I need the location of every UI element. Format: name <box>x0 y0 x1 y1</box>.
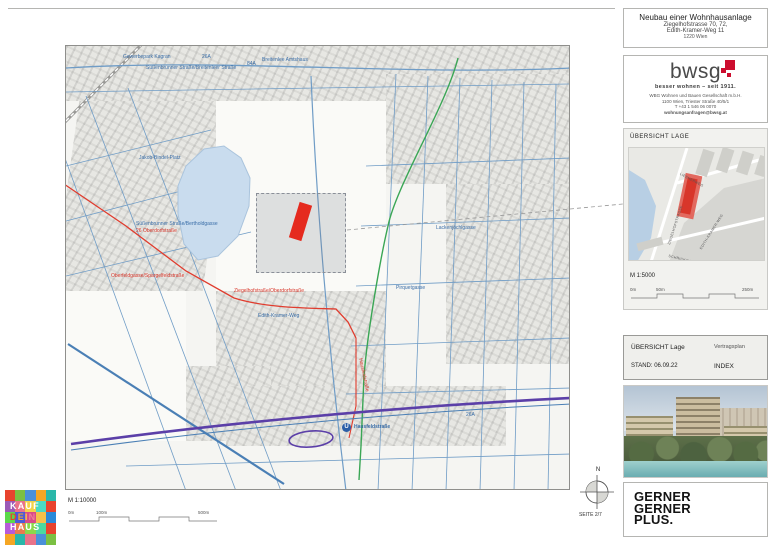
bwsg-logo: bwsg <box>670 62 721 82</box>
map-scale-bar: 0m 100m 500m <box>68 508 220 526</box>
metro-station-label: Hausfeldstraße <box>354 425 390 430</box>
plan-date-label: STAND: 06.09.22 <box>631 363 678 369</box>
map-street-label: Gewerbepark Kagran <box>123 55 171 60</box>
bwsg-square-icon <box>725 60 735 70</box>
metro-turnback-loop <box>288 429 333 449</box>
map-street-label: Jakob-Bindel-Platz <box>139 156 181 161</box>
plan-titleblock: ÜBERSICHT Lage Vertragsplan STAND: 06.09… <box>623 335 768 380</box>
metro-station-icon: U <box>342 423 351 432</box>
city-map: Gewerbepark Kagran Süßenbrunner Straße/B… <box>65 45 570 490</box>
svg-text:250m: 250m <box>742 287 754 292</box>
overview-section-title: ÜBERSICHT LAGE <box>630 134 689 140</box>
architect-logo-block: GERNER GERNER PLUS. <box>623 482 768 537</box>
bus-number-label: 84A <box>247 62 256 67</box>
bus-route-red-spur <box>349 338 356 438</box>
bus-number-label: 26A <box>466 413 475 418</box>
map-street-label: Süßenbrunner Straße/Bertholdgasse <box>136 222 218 227</box>
bwsg-wordmark: bwsg <box>670 60 721 83</box>
kdh-line-haus: HAUS <box>10 522 40 533</box>
map-scale-label: M 1:10000 <box>68 498 96 504</box>
map-stop-label: Oberfeldgasse/Spargelfeldstraße <box>111 274 184 279</box>
map-stop-label: Ziegelhofstraße/Oberdorfstraße <box>234 289 304 294</box>
page-number-label: SEITE 2/7 <box>579 512 602 518</box>
bwsg-logo-block: bwsg besser wohnen – seit 1911. WBG Wohn… <box>623 55 768 123</box>
plan-category-label: Vertragsplan <box>714 344 745 350</box>
svg-text:100m: 100m <box>96 510 108 515</box>
map-street-label: Pirquetgasse <box>396 286 425 291</box>
overview-minimap: ZIEGELHOFSTRASSE EDITH-KRAMER-WEG LIESNE… <box>628 147 765 261</box>
bwsg-email: wohnungsanfragen@bwsg.at <box>624 110 767 116</box>
kdh-line-dein: DEIN <box>10 512 40 523</box>
map-street-label: Breitenlee Amtshaus <box>262 58 308 63</box>
kauf-dein-haus-text: KAUF DEIN HAUS <box>10 501 40 533</box>
overview-section: ÜBERSICHT LAGE ZIEGELHOFSTRASSE EDITH-KR… <box>623 128 768 310</box>
minimap-scale-bar: 0m 50m 250m <box>630 285 762 303</box>
plan-index-label: INDEX <box>714 363 734 370</box>
bwsg-square-icon <box>721 68 726 73</box>
bwsg-tagline: besser wohnen – seit 1911. <box>624 84 767 90</box>
svg-text:0m: 0m <box>630 287 637 292</box>
svg-text:0m: 0m <box>68 510 75 515</box>
map-street-label: Edith-Kramer-Weg <box>258 314 299 319</box>
sheet-top-border <box>8 8 615 9</box>
map-street-label: Süßenbrunner Straße/Breitenleer Straße <box>146 66 236 71</box>
map-stop-label: 26 Oberdorfstraße <box>136 229 177 234</box>
minimap-scale-label: M 1:5000 <box>630 273 655 279</box>
project-city: 1220 Wien <box>624 34 767 40</box>
render-water <box>624 461 768 478</box>
bwsg-square-icon <box>727 73 731 77</box>
compass-icon <box>580 474 614 510</box>
kdh-line-kauf: KAUF <box>10 501 40 512</box>
compass-north-label: N <box>593 467 603 473</box>
project-title-block: Neubau einer Wohnhausanlage Ziegelhofstr… <box>623 8 768 48</box>
metro-parallel-road <box>71 404 570 450</box>
pond-water <box>178 146 250 260</box>
plan-type-label: ÜBERSICHT Lage <box>631 344 685 351</box>
bus-number-label: 26A <box>202 55 211 60</box>
svg-text:50m: 50m <box>656 287 665 292</box>
architect-logo-line: PLUS. <box>634 514 767 526</box>
svg-text:500m: 500m <box>198 510 210 515</box>
map-street-label: Lackenjöchlgasse <box>436 226 476 231</box>
project-rendering-image <box>623 385 768 478</box>
project-title: Neubau einer Wohnhausanlage <box>624 13 767 22</box>
